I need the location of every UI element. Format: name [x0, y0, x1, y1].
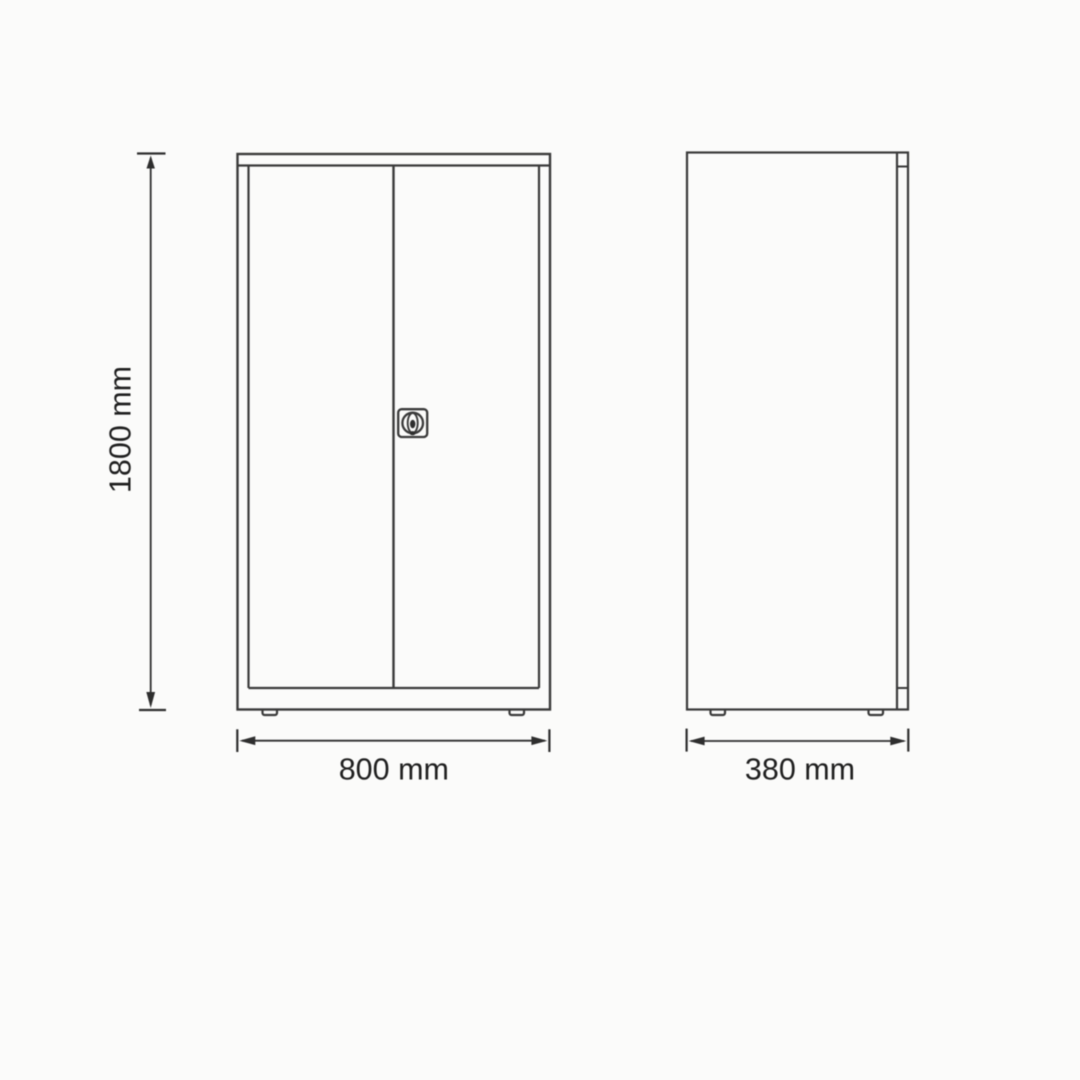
svg-text:1800 mm: 1800 mm: [104, 366, 138, 493]
svg-text:800 mm: 800 mm: [339, 752, 449, 786]
svg-text:380 mm: 380 mm: [745, 753, 855, 787]
